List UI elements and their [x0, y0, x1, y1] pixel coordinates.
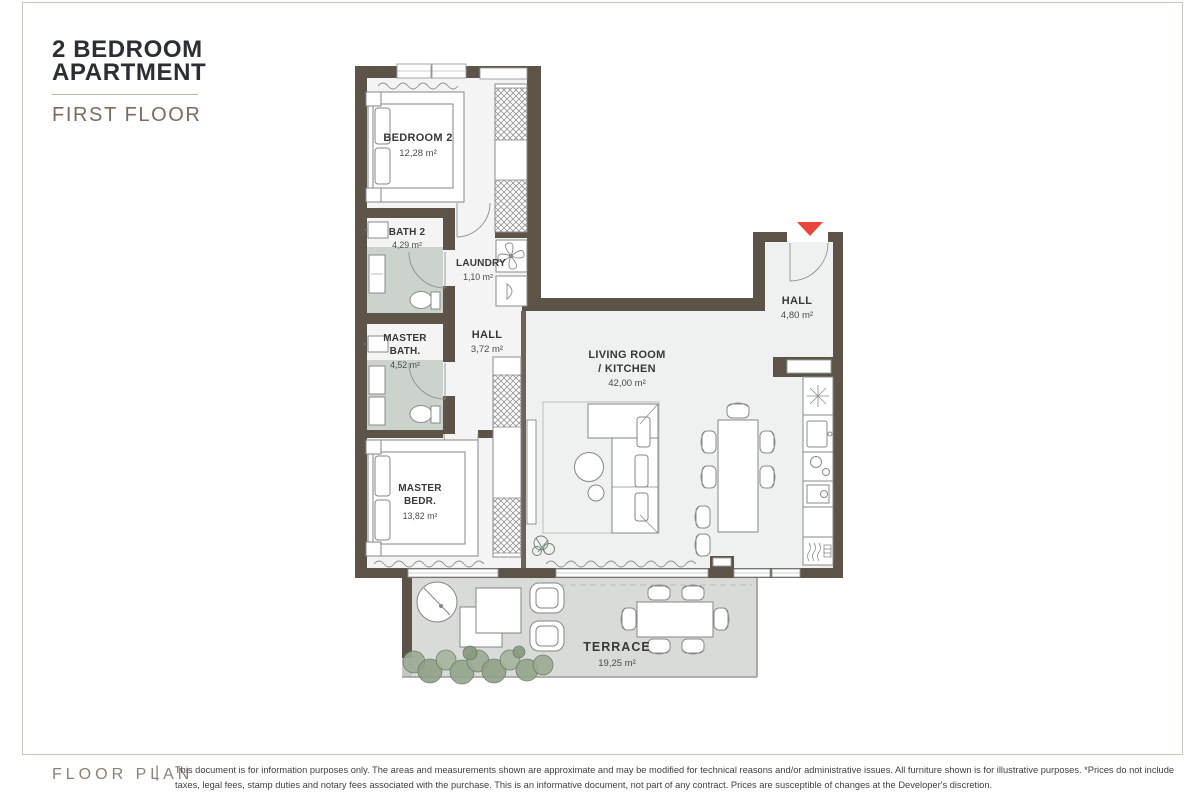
label-terrace: TERRACE [583, 640, 650, 654]
sink-icon [807, 421, 827, 447]
kitchen-counter [803, 377, 833, 565]
tv-console [527, 420, 536, 524]
entrance-arrow [797, 222, 823, 236]
wardrobe-lower [493, 357, 521, 557]
label-laundry: LAUNDRY [456, 258, 506, 269]
page-title-line1: 2 BEDROOM [52, 38, 312, 61]
terrace-table-square [476, 588, 521, 633]
area-hall: 3,72 m² [471, 344, 503, 355]
area-laundry: 1,10 m² [463, 272, 493, 282]
oven-icon [807, 485, 829, 503]
label-entrance-hall: HALL [782, 295, 813, 307]
terrace-armchair-2 [530, 621, 564, 651]
label-bedroom2: BEDROOM 2 [383, 132, 452, 144]
area-master-bedr: 13,82 m² [403, 511, 438, 521]
coffee-table-large [575, 453, 604, 482]
area-entrance-hall: 4,80 m² [781, 310, 813, 321]
area-living: 42,00 m² [608, 378, 646, 389]
dining-table [718, 420, 758, 532]
footer-disclaimer: This document is for information purpose… [175, 763, 1175, 793]
footer-label: FLOOR PLAN [52, 766, 193, 784]
wardrobe-upper [495, 84, 527, 232]
footer-separator: | [155, 764, 159, 782]
label-master-bedr-1: MASTER [398, 483, 442, 494]
area-bedroom2: 12,28 m² [399, 148, 437, 159]
area-master-bath: 4,52 m² [390, 360, 420, 370]
page-subtitle: FIRST FLOOR [52, 104, 312, 127]
label-living-2: / KITCHEN [598, 363, 656, 375]
floor-plan-svg: BEDROOM 2 12,28 m² BATH 2 4,29 m² LAUNDR… [340, 50, 870, 700]
page-title-line2: APARTMENT [52, 61, 312, 84]
area-terrace: 19,25 m² [598, 658, 636, 669]
title-block: 2 BEDROOM APARTMENT FIRST FLOOR [52, 38, 312, 127]
label-master-bath-2: BATH. [390, 346, 421, 357]
coffee-table-small [588, 485, 604, 501]
area-bath2: 4,29 m² [392, 240, 422, 250]
floor-plan: BEDROOM 2 12,28 m² BATH 2 4,29 m² LAUNDR… [340, 50, 870, 700]
label-hall: HALL [472, 329, 503, 341]
bedroom2-bed [366, 92, 464, 202]
terrace-armchair-1 [530, 583, 564, 613]
label-bath2: BATH 2 [389, 227, 426, 238]
title-divider [52, 94, 198, 95]
label-master-bedr-2: BEDR. [404, 496, 436, 507]
label-living-1: LIVING ROOM [588, 349, 665, 361]
terrace-dining-table [637, 602, 713, 637]
label-master-bath-1: MASTER [383, 333, 427, 344]
extractor-icon [807, 385, 829, 407]
